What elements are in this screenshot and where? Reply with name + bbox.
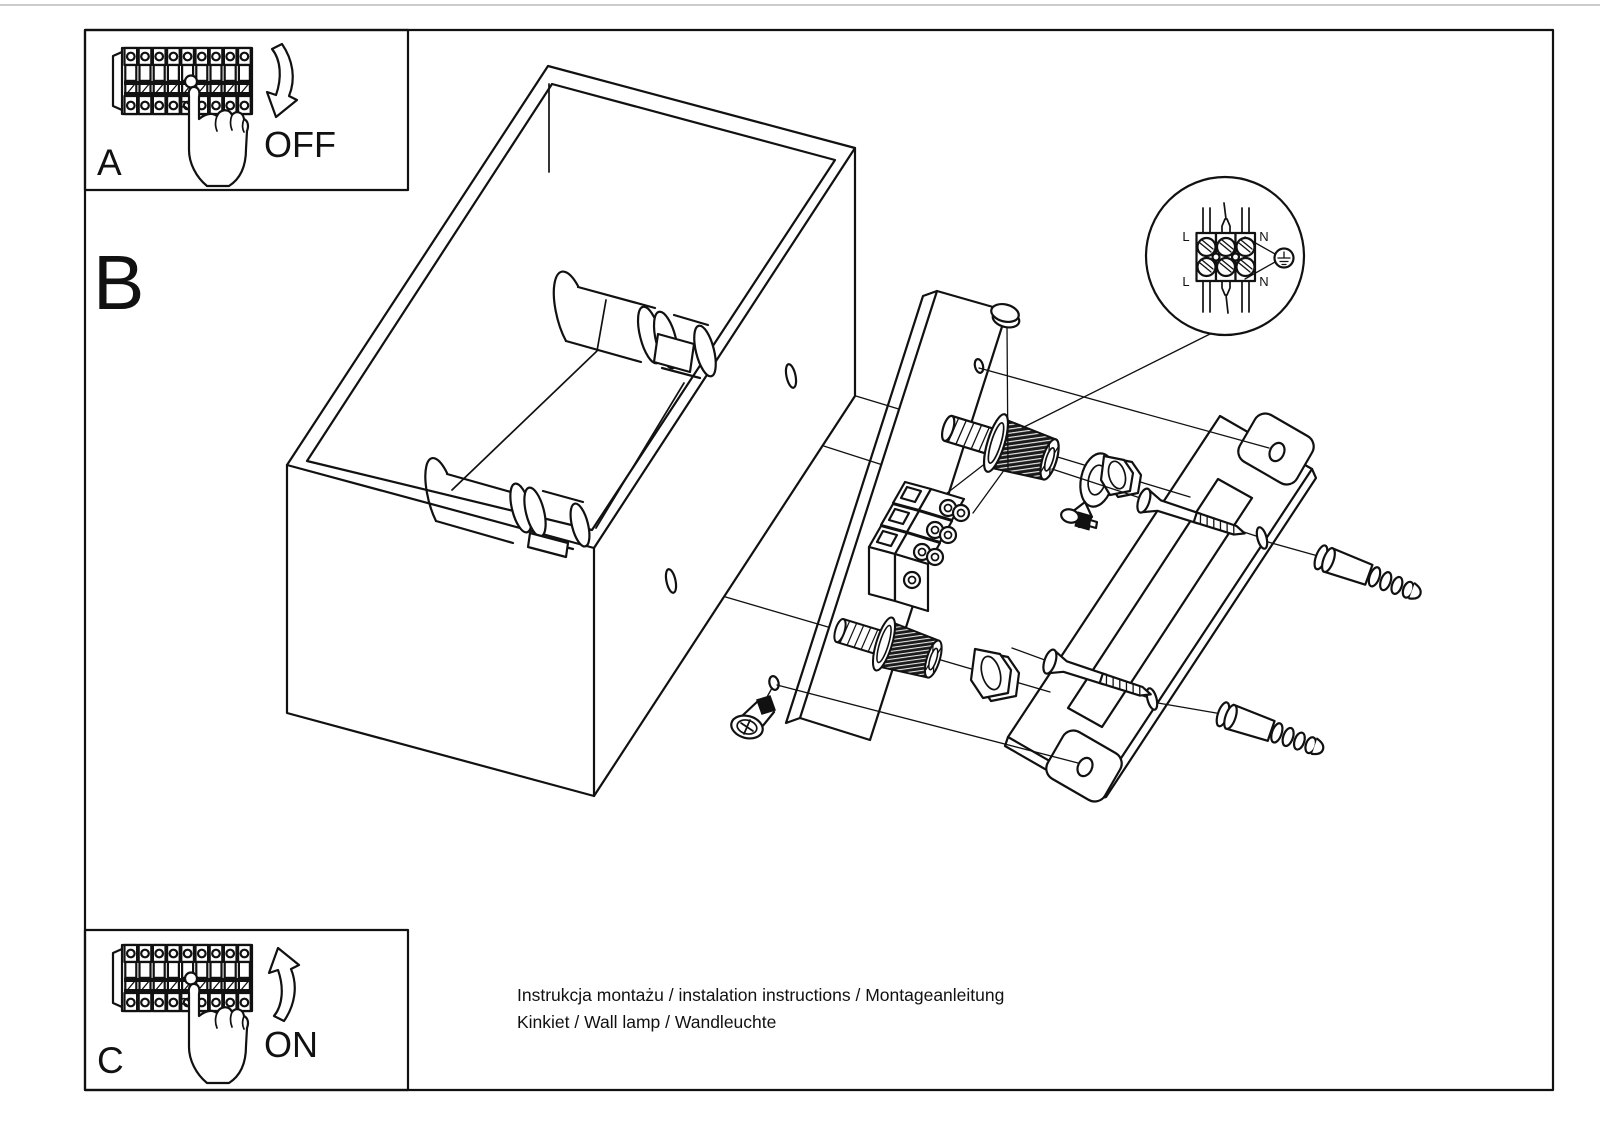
mounting-screw-top bbox=[1135, 487, 1249, 545]
mounting-screw-bottom bbox=[1041, 648, 1155, 706]
inset-label-l-bottom: L bbox=[1182, 274, 1189, 289]
caption-line-2: Kinkiet / Wall lamp / Wandleuchte bbox=[517, 1012, 776, 1032]
caption-block: Instrukcja montażu / instalation instruc… bbox=[517, 985, 1004, 1032]
wall-anchor-top bbox=[1312, 544, 1425, 605]
earth-ground-icon bbox=[1275, 249, 1294, 268]
instruction-sheet: A OFF C ON B bbox=[0, 0, 1600, 1130]
plate-bottom-hole bbox=[768, 675, 780, 691]
panel-c-state-label: ON bbox=[264, 1024, 318, 1065]
inset-terminal-block bbox=[1197, 233, 1256, 281]
wiring-detail-inset: L L N N bbox=[1022, 177, 1304, 428]
hex-nut-lower bbox=[971, 649, 1019, 701]
panel-a: A OFF bbox=[85, 30, 408, 190]
panel-c-label: C bbox=[97, 1040, 124, 1081]
bracket-screw-hole-top bbox=[1255, 526, 1269, 550]
caption-line-1: Instrukcja montażu / instalation instruc… bbox=[517, 985, 1004, 1005]
inset-label-l-top: L bbox=[1182, 229, 1189, 244]
panel-c: C ON bbox=[85, 930, 408, 1090]
hex-nut-upper bbox=[1101, 456, 1141, 497]
installation-diagram-svg: A OFF C ON B bbox=[0, 0, 1600, 1130]
inset-leader-line bbox=[1022, 334, 1210, 428]
panel-a-label: A bbox=[97, 142, 122, 183]
curved-arrow-up-icon bbox=[269, 948, 299, 1021]
panel-a-state-label: OFF bbox=[264, 124, 336, 165]
inset-label-n-top: N bbox=[1259, 229, 1268, 244]
panel-b-label: B bbox=[93, 240, 144, 326]
exploded-view-drawing bbox=[287, 66, 1425, 806]
curved-arrow-down-icon bbox=[267, 44, 297, 117]
plate-bottom-screw bbox=[729, 688, 775, 742]
inset-label-n-bottom: N bbox=[1259, 274, 1268, 289]
wall-anchor-bottom bbox=[1214, 701, 1327, 761]
